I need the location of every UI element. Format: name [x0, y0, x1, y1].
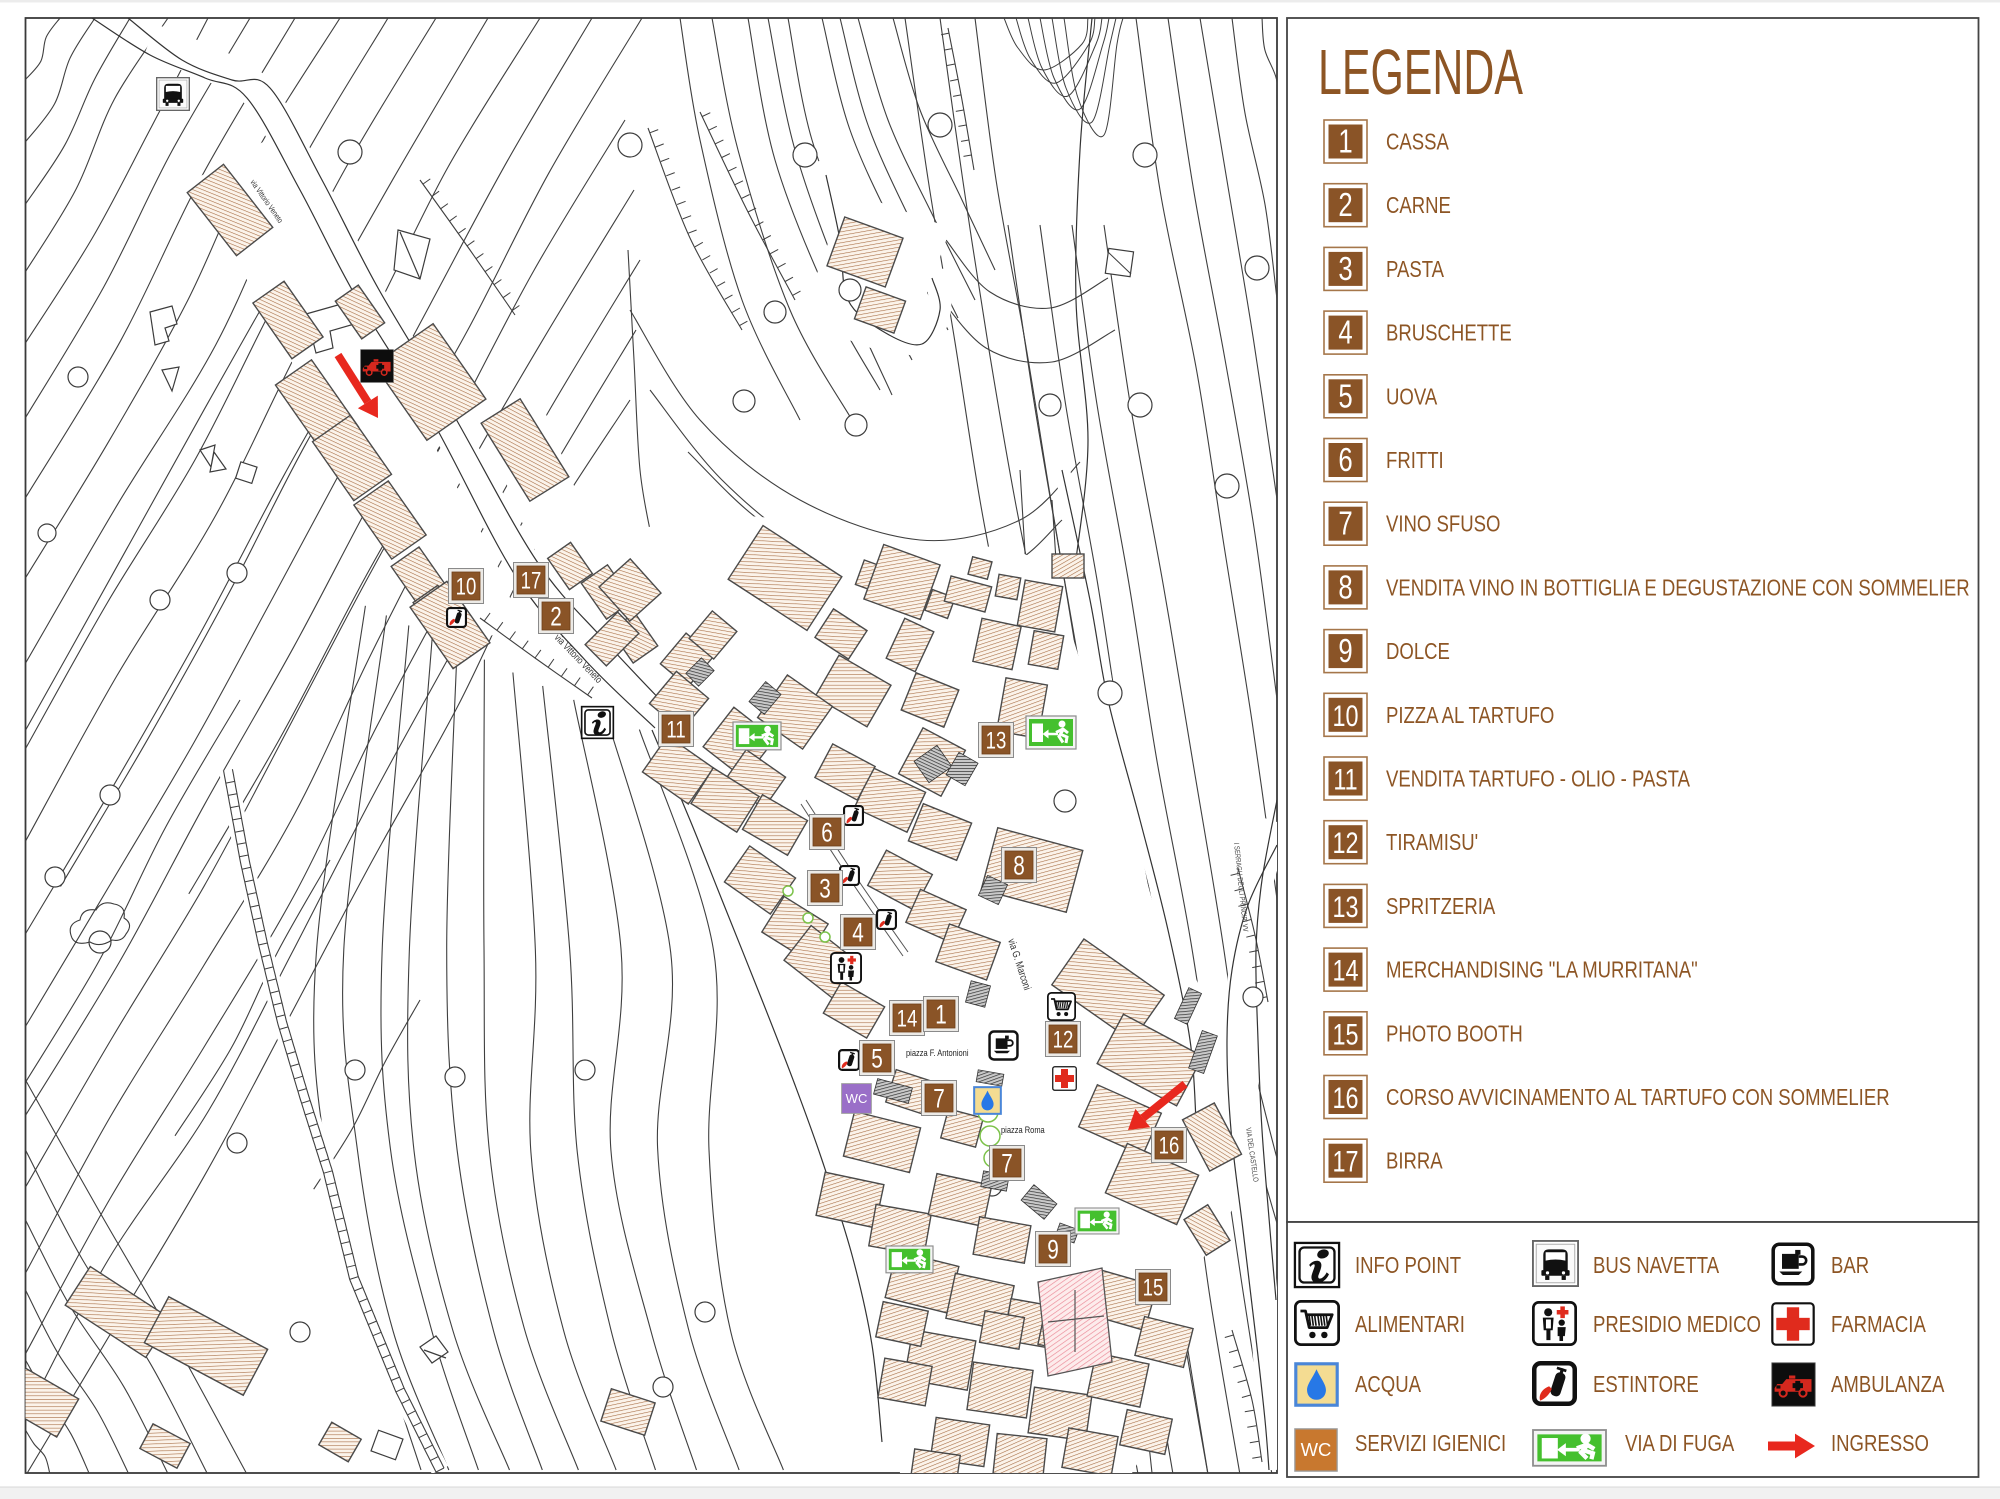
svg-text:1: 1 — [935, 1000, 947, 1030]
svg-text:9: 9 — [1047, 1235, 1059, 1265]
svg-text:UOVA: UOVA — [1386, 384, 1438, 410]
svg-text:PIZZA AL TARTUFO: PIZZA AL TARTUFO — [1386, 703, 1554, 729]
svg-text:BUS NAVETTA: BUS NAVETTA — [1593, 1253, 1720, 1279]
svg-text:13: 13 — [986, 727, 1007, 754]
svg-text:4: 4 — [852, 918, 864, 948]
svg-text:2: 2 — [550, 602, 562, 632]
svg-text:INFO POINT: INFO POINT — [1355, 1253, 1461, 1279]
svg-text:16: 16 — [1159, 1132, 1180, 1159]
svg-text:7: 7 — [1001, 1149, 1013, 1179]
svg-text:15: 15 — [1143, 1274, 1164, 1301]
svg-text:SPRITZERIA: SPRITZERIA — [1386, 894, 1496, 920]
svg-text:3: 3 — [1338, 251, 1352, 288]
svg-text:12: 12 — [1332, 826, 1358, 859]
svg-text:VIA DI FUGA: VIA DI FUGA — [1625, 1431, 1735, 1457]
svg-text:1: 1 — [1338, 124, 1352, 161]
svg-text:ESTINTORE: ESTINTORE — [1593, 1372, 1699, 1398]
svg-text:AMBULANZA: AMBULANZA — [1831, 1372, 1945, 1398]
svg-text:piazza F. Antonioni: piazza F. Antonioni — [906, 1047, 969, 1058]
svg-text:14: 14 — [897, 1005, 918, 1032]
svg-text:8: 8 — [1013, 851, 1025, 881]
svg-text:3: 3 — [819, 874, 831, 904]
svg-text:5: 5 — [1338, 378, 1352, 415]
svg-text:12: 12 — [1053, 1026, 1074, 1053]
svg-text:VENDITA VINO IN BOTTIGLIA E DE: VENDITA VINO IN BOTTIGLIA E DEGUSTAZIONE… — [1386, 575, 1970, 601]
svg-text:BIRRA: BIRRA — [1386, 1149, 1443, 1175]
svg-text:BAR: BAR — [1831, 1253, 1869, 1279]
svg-text:TIRAMISU': TIRAMISU' — [1386, 830, 1478, 856]
svg-text:CARNE: CARNE — [1386, 193, 1451, 219]
svg-text:SERVIZI IGIENICI: SERVIZI IGIENICI — [1355, 1431, 1506, 1457]
svg-text:LEGENDA: LEGENDA — [1318, 36, 1523, 108]
svg-text:WC: WC — [1301, 1439, 1332, 1460]
svg-text:piazza Roma: piazza Roma — [1001, 1124, 1045, 1135]
svg-text:17: 17 — [521, 567, 542, 594]
svg-text:ALIMENTARI: ALIMENTARI — [1355, 1312, 1465, 1338]
svg-text:MERCHANDISING "LA MURRITANA": MERCHANDISING "LA MURRITANA" — [1386, 958, 1698, 984]
svg-text:FARMACIA: FARMACIA — [1831, 1312, 1927, 1338]
svg-text:PASTA: PASTA — [1386, 257, 1445, 283]
svg-text:FRITTI: FRITTI — [1386, 448, 1444, 474]
svg-text:11: 11 — [1333, 763, 1357, 796]
svg-text:CORSO AVVICINAMENTO AL TARTUFO: CORSO AVVICINAMENTO AL TARTUFO CON SOMME… — [1386, 1085, 1890, 1111]
svg-text:2: 2 — [1338, 187, 1352, 224]
svg-text:WC: WC — [846, 1091, 868, 1106]
svg-text:15: 15 — [1332, 1018, 1358, 1051]
svg-text:8: 8 — [1338, 569, 1352, 606]
svg-text:BRUSCHETTE: BRUSCHETTE — [1386, 321, 1512, 347]
svg-text:VINO SFUSO: VINO SFUSO — [1386, 512, 1500, 538]
svg-text:7: 7 — [933, 1084, 945, 1114]
svg-text:ACQUA: ACQUA — [1355, 1372, 1422, 1398]
svg-text:6: 6 — [1338, 442, 1352, 479]
svg-text:14: 14 — [1332, 954, 1358, 987]
svg-text:10: 10 — [456, 573, 477, 600]
svg-text:5: 5 — [871, 1044, 883, 1074]
svg-text:13: 13 — [1332, 890, 1358, 923]
svg-text:INGRESSO: INGRESSO — [1831, 1431, 1929, 1457]
svg-text:10: 10 — [1332, 699, 1358, 732]
svg-text:PHOTO BOOTH: PHOTO BOOTH — [1386, 1021, 1523, 1047]
svg-text:17: 17 — [1332, 1145, 1358, 1178]
svg-text:CASSA: CASSA — [1386, 130, 1450, 156]
svg-text:VENDITA TARTUFO - OLIO - PASTA: VENDITA TARTUFO - OLIO - PASTA — [1386, 767, 1691, 793]
svg-text:4: 4 — [1338, 315, 1352, 352]
svg-text:16: 16 — [1332, 1081, 1358, 1114]
svg-text:DOLCE: DOLCE — [1386, 639, 1450, 665]
svg-text:9: 9 — [1338, 633, 1352, 670]
svg-text:11: 11 — [666, 716, 685, 743]
svg-text:6: 6 — [821, 818, 833, 848]
svg-text:7: 7 — [1338, 506, 1352, 543]
svg-text:PRESIDIO MEDICO: PRESIDIO MEDICO — [1593, 1312, 1761, 1338]
